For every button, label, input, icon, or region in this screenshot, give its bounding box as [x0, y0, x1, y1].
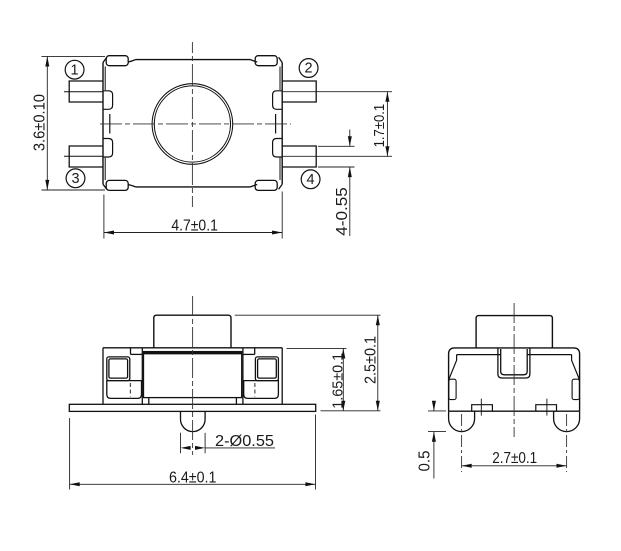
svg-text:3.6±0.10: 3.6±0.10: [32, 94, 49, 151]
svg-text:4: 4: [307, 172, 315, 188]
svg-text:2.7±0.1: 2.7±0.1: [492, 450, 537, 467]
svg-text:0.5: 0.5: [416, 451, 433, 472]
svg-text:1: 1: [71, 62, 79, 78]
svg-text:2-Ø0.55: 2-Ø0.55: [215, 433, 274, 450]
svg-text:4-0.55: 4-0.55: [334, 187, 351, 236]
svg-text:1.7±0.1: 1.7±0.1: [371, 104, 388, 148]
svg-text:2: 2: [305, 61, 313, 77]
svg-text:2.5±0.1: 2.5±0.1: [363, 336, 380, 384]
svg-text:1.65±0.1: 1.65±0.1: [329, 353, 346, 409]
svg-text:3: 3: [71, 171, 79, 187]
svg-text:4.7±0.1: 4.7±0.1: [171, 218, 218, 235]
svg-text:6.4±0.1: 6.4±0.1: [169, 470, 217, 487]
